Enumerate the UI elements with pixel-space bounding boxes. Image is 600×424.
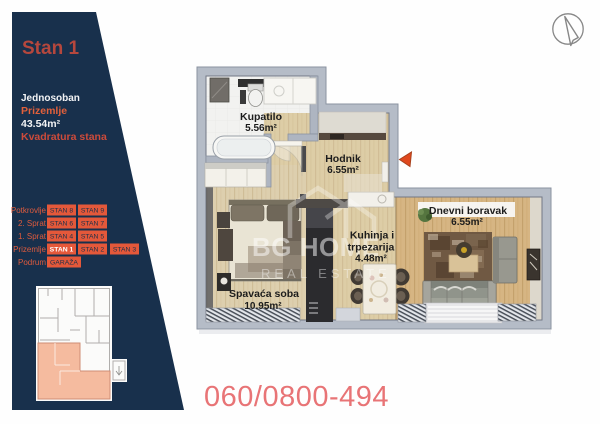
svg-text:GARAŽA: GARAŽA xyxy=(50,258,78,267)
svg-text:REAL ESTATE: REAL ESTATE xyxy=(261,266,391,281)
svg-text:Kvadratura stana: Kvadratura stana xyxy=(21,131,107,143)
svg-text:STAN 2: STAN 2 xyxy=(81,247,105,254)
svg-text:Prizemlje: Prizemlje xyxy=(13,245,46,254)
svg-text:Jednosoban: Jednosoban xyxy=(21,93,80,104)
svg-text:STAN 5: STAN 5 xyxy=(81,234,105,241)
svg-text:STAN 1: STAN 1 xyxy=(50,247,74,254)
svg-text:STAN 9: STAN 9 xyxy=(81,208,105,215)
svg-text:Podrum: Podrum xyxy=(18,258,46,267)
svg-text:5.56m²: 5.56m² xyxy=(245,123,277,134)
svg-text:Spavaća soba: Spavaća soba xyxy=(229,288,299,300)
svg-text:STAN 3: STAN 3 xyxy=(113,247,137,254)
svg-text:trpezarija: trpezarija xyxy=(348,242,395,254)
svg-text:STAN 8: STAN 8 xyxy=(50,208,74,215)
svg-text:060/0800-494: 060/0800-494 xyxy=(204,381,389,413)
svg-text:Dnevni boravak: Dnevni boravak xyxy=(429,205,507,217)
svg-text:STAN 6: STAN 6 xyxy=(50,221,74,228)
svg-text:1. Sprat: 1. Sprat xyxy=(18,232,47,241)
svg-text:Kuhinja i: Kuhinja i xyxy=(350,230,394,242)
svg-text:2. Sprat: 2. Sprat xyxy=(18,219,47,228)
svg-text:Stan 1: Stan 1 xyxy=(22,38,79,59)
svg-text:4.48m²: 4.48m² xyxy=(355,254,387,265)
svg-text:10.95m²: 10.95m² xyxy=(244,301,282,312)
svg-text:Prizemlje: Prizemlje xyxy=(21,105,67,117)
svg-text:6.55m²: 6.55m² xyxy=(327,165,359,176)
svg-text:STAN 7: STAN 7 xyxy=(81,221,105,228)
svg-text:Potkrovlje: Potkrovlje xyxy=(11,206,47,215)
svg-text:43.54m²: 43.54m² xyxy=(21,118,61,130)
svg-text:Hodnik: Hodnik xyxy=(325,153,361,165)
svg-text:6.55m²: 6.55m² xyxy=(451,217,483,228)
svg-text:STAN 4: STAN 4 xyxy=(50,234,74,241)
svg-text:Kupatilo: Kupatilo xyxy=(240,111,282,123)
